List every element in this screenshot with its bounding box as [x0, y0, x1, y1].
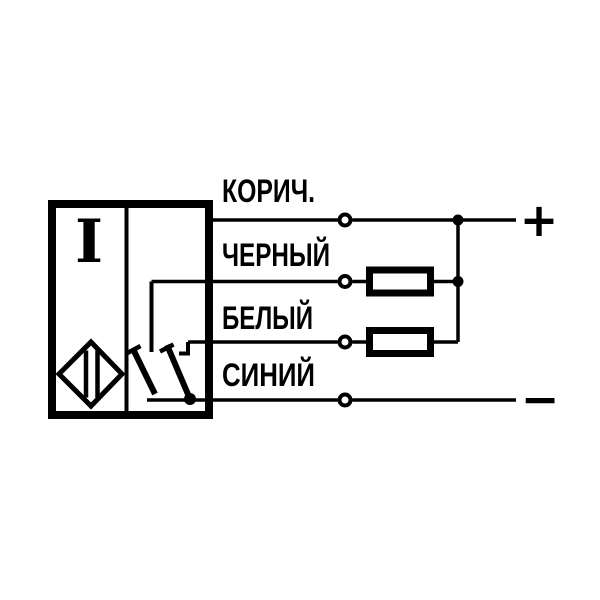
terminal-brown: [340, 215, 351, 226]
sensor-function-symbol: I: [75, 207, 103, 277]
label-wire-brown: КОРИЧ.: [222, 173, 315, 209]
terminal-blue: [340, 395, 351, 406]
switch-pivot-dot: [184, 393, 196, 405]
terminal-black: [340, 276, 351, 287]
wiring-diagram: I КОРИЧ. ЧЕРНЫЙ БЕЛЫЙ СИНИЙ + −: [0, 0, 600, 600]
junction-dot-black: [453, 276, 464, 287]
terminal-white: [340, 337, 351, 348]
load-resistor-black: [370, 270, 431, 293]
diagram-svg: I КОРИЧ. ЧЕРНЫЙ БЕЛЫЙ СИНИЙ + −: [0, 0, 600, 600]
label-wire-white: БЕЛЫЙ: [222, 300, 313, 336]
output-switch-white: [160, 342, 190, 399]
plus-sign: +: [520, 193, 559, 247]
junction-dot-plus: [453, 215, 464, 226]
label-wire-black: ЧЕРНЫЙ: [222, 237, 330, 273]
inductive-sensor-icon: [59, 342, 122, 406]
label-wire-blue: СИНИЙ: [222, 357, 315, 393]
minus-sign: −: [521, 372, 560, 426]
output-switch-black: [127, 282, 156, 395]
load-resistor-white: [370, 331, 431, 354]
